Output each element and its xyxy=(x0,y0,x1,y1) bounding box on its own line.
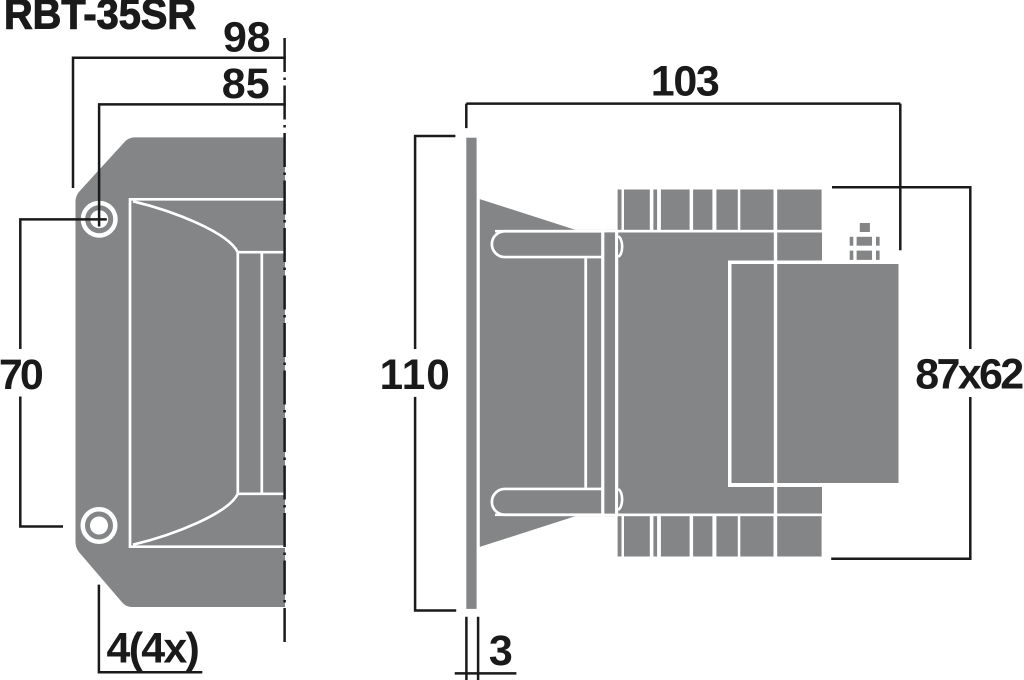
svg-text:87x62: 87x62 xyxy=(915,350,1024,398)
svg-text:98: 98 xyxy=(223,14,270,62)
svg-text:70: 70 xyxy=(0,351,44,399)
svg-text:85: 85 xyxy=(222,60,270,108)
svg-text:RBT-35SR: RBT-35SR xyxy=(4,0,196,39)
svg-text:3: 3 xyxy=(489,627,513,675)
svg-text:4(4x): 4(4x) xyxy=(107,625,200,673)
svg-text:103: 103 xyxy=(651,57,720,105)
svg-text:110: 110 xyxy=(380,350,451,398)
